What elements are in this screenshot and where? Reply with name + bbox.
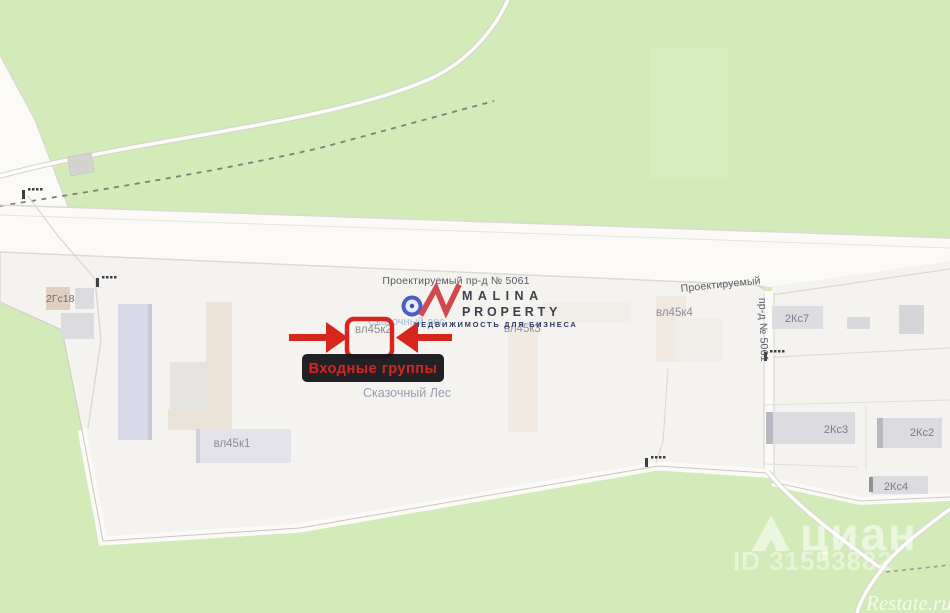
building-forest-hut — [67, 153, 94, 176]
label-ks3: 2Кс3 — [824, 424, 848, 436]
label-vl45k1: вл45к1 — [214, 438, 251, 450]
road-label-right-v: пр-д № 5061 — [756, 298, 770, 362]
label-ks4: 2Кс4 — [884, 481, 908, 493]
building-gs18-annex — [75, 288, 94, 309]
tooltip-label: Входные группы — [309, 361, 438, 377]
right-cluster-area — [772, 261, 950, 497]
logo-line2: PROPERTY — [462, 305, 561, 319]
arrow-left-icon — [414, 334, 452, 341]
building-gray-mid — [170, 362, 208, 410]
label-gs18: 2Гс18 — [46, 293, 75, 305]
building-ks2-edge — [877, 418, 883, 448]
building-gs18-annex2 — [61, 313, 94, 339]
building-vl45k1-edge — [196, 429, 200, 463]
building-small-2 — [899, 305, 924, 334]
building-center-slab — [508, 332, 538, 432]
restate-watermark: Restate.ru — [865, 591, 950, 613]
forest-clearing — [650, 48, 728, 178]
map-svg[interactable]: Проектируемый пр-д № 5061 Проектируемый … — [0, 0, 950, 613]
logo-line1: MALINA — [462, 289, 544, 303]
logo-tagline: НЕДВИЖИМОСТЬ ДЛЯ БИЗНЕСА — [414, 320, 578, 329]
building-lavender-edge — [148, 304, 152, 440]
arrow-right-icon — [289, 334, 326, 341]
label-ks2: 2Кс2 — [910, 427, 934, 439]
label-park: Сказочный Лес — [363, 386, 451, 400]
label-ks7: 2Кс7 — [785, 313, 809, 325]
building-beige-low — [168, 409, 231, 430]
poi-icon-dot — [410, 304, 414, 308]
building-ks4-edge — [869, 477, 873, 492]
listing-id-watermark: ID 31553882 — [733, 546, 893, 576]
building-small-1 — [847, 317, 870, 329]
label-vl45k4: вл45к4 — [656, 307, 693, 319]
map-canvas[interactable]: Проектируемый пр-д № 5061 Проектируемый … — [0, 0, 950, 613]
building-vl45k4-b — [676, 318, 723, 362]
building-lavender — [118, 304, 152, 440]
building-ks3-edge — [766, 412, 773, 444]
